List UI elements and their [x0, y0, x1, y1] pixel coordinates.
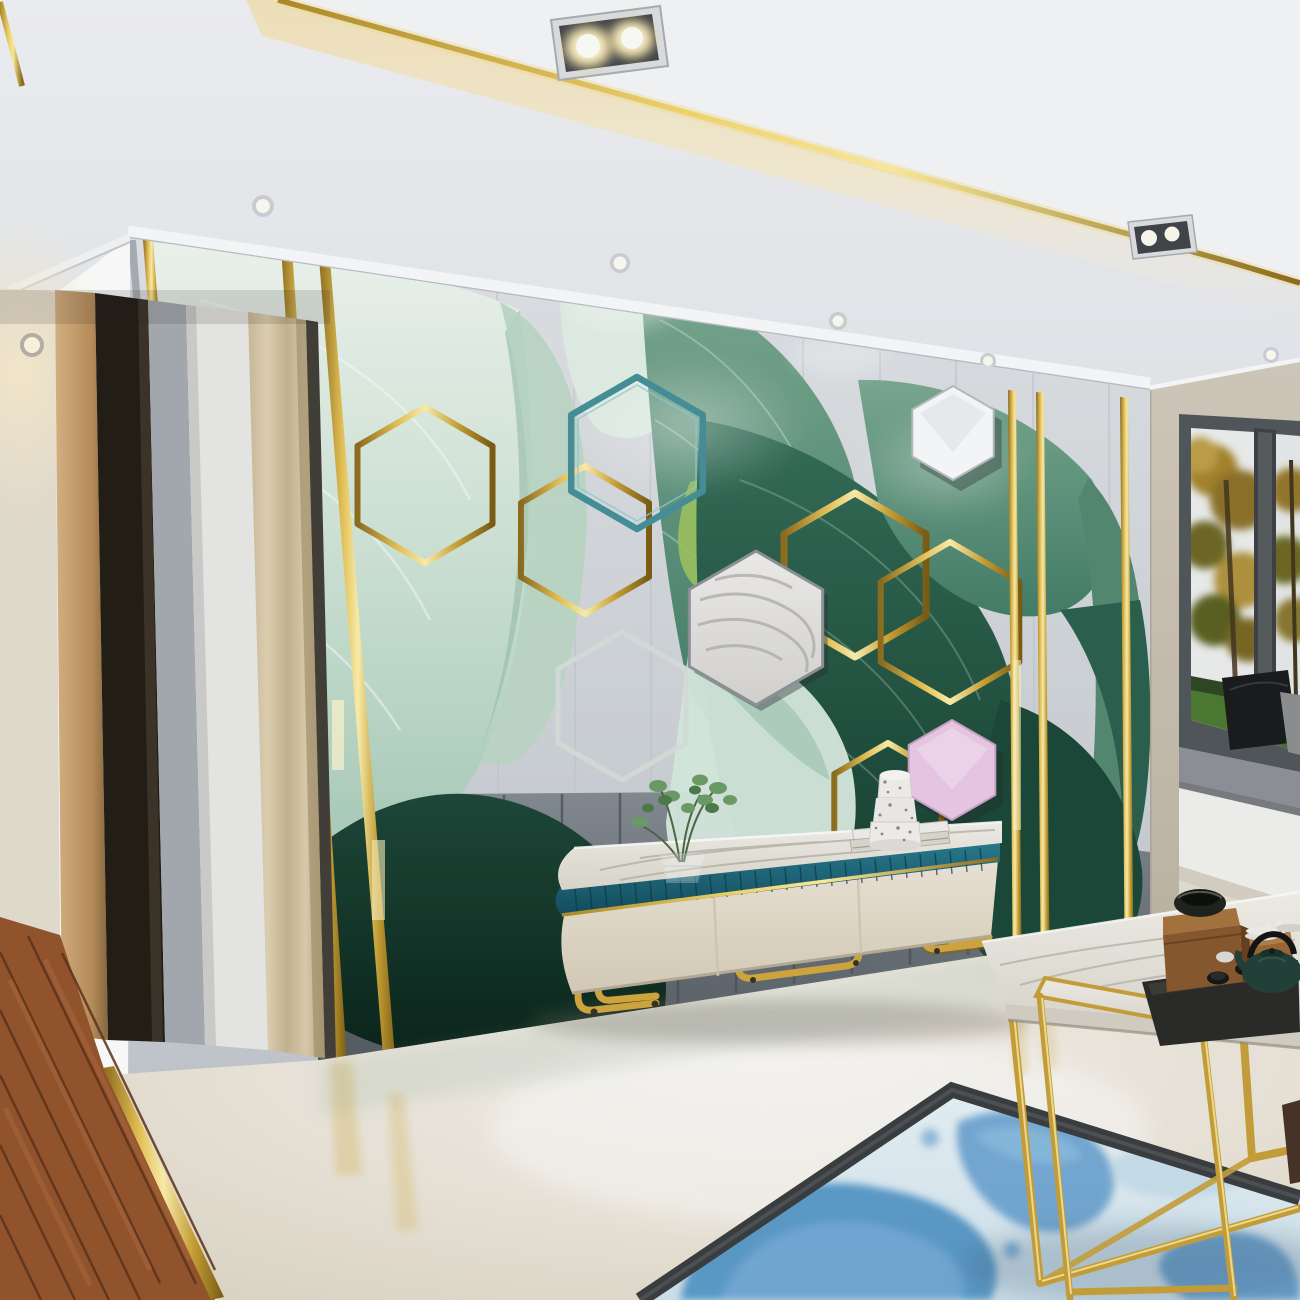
vignette: [0, 0, 1300, 1300]
living-room-render: [0, 0, 1300, 1300]
